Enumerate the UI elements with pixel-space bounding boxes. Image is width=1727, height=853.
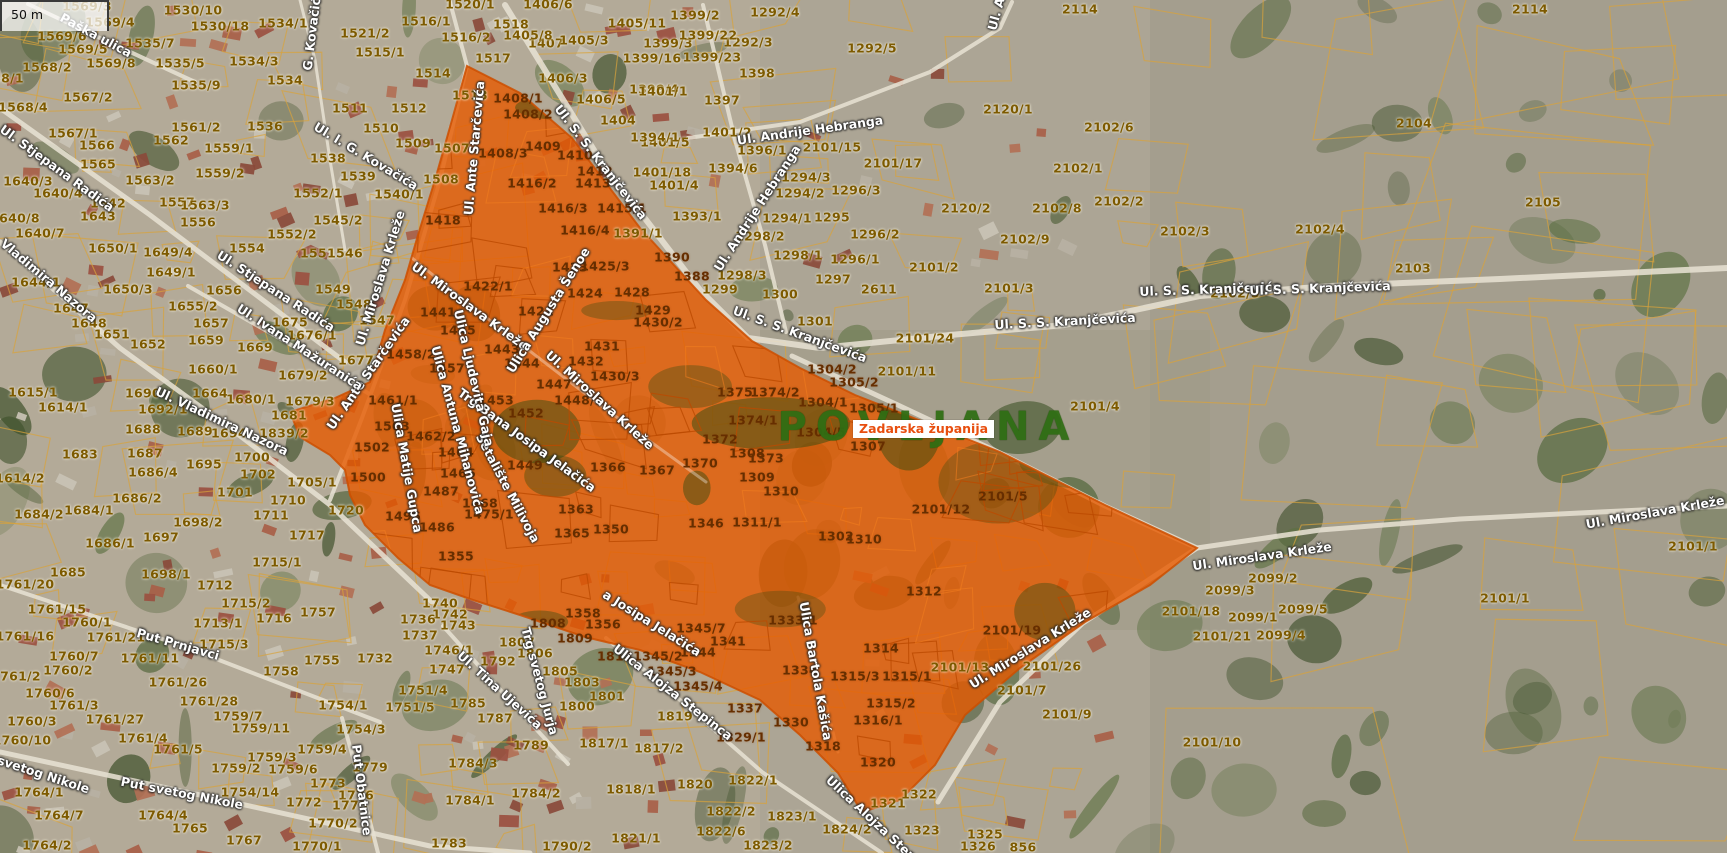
map-canvas[interactable]: 1569/31530/101569/41530/181534/11569/615… xyxy=(0,0,1727,853)
scale-bar-label: 50 m xyxy=(11,7,43,22)
scale-bar: 50 m xyxy=(0,0,109,31)
satellite-base-layer xyxy=(0,0,1727,853)
